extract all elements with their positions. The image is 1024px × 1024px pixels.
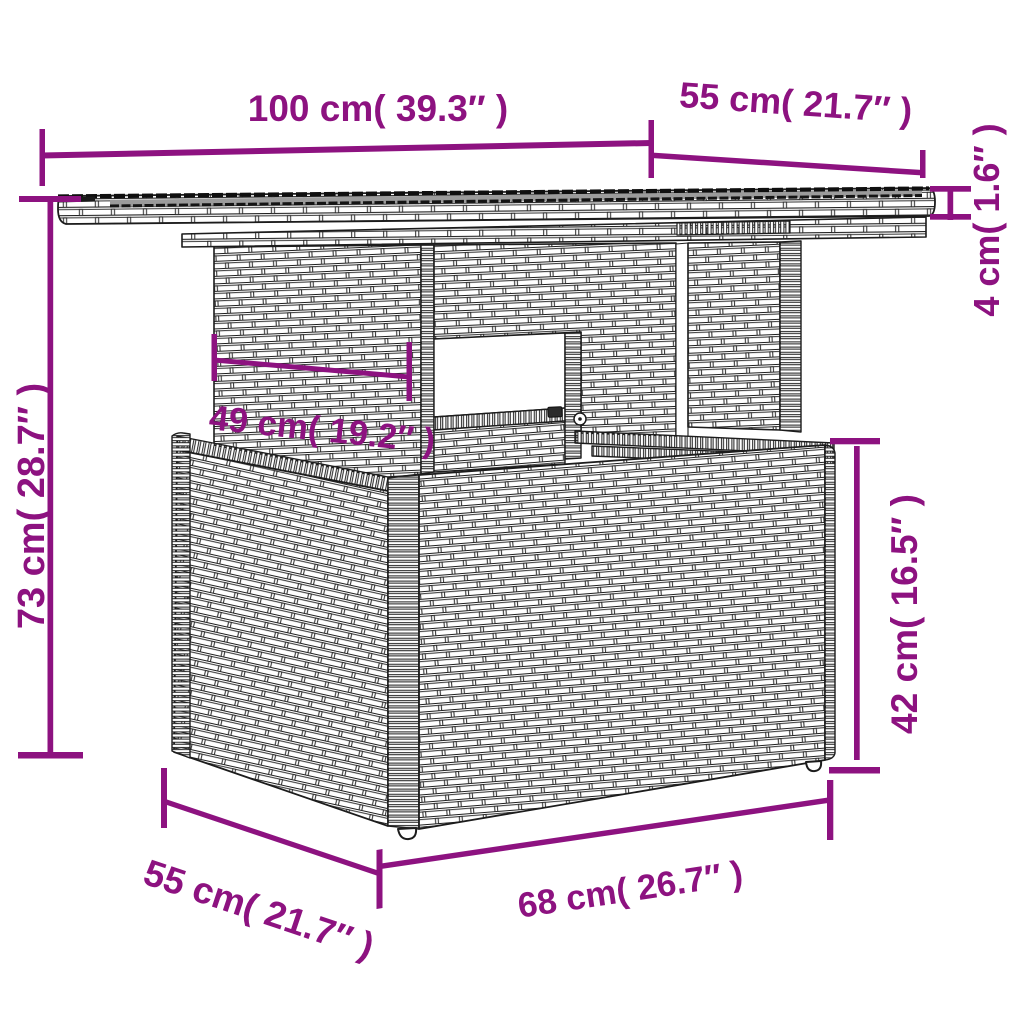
- svg-text:100 cm( 39.3″ ): 100 cm( 39.3″ ): [248, 88, 508, 129]
- svg-text:4 cm( 1.6″ ): 4 cm( 1.6″ ): [966, 123, 1007, 316]
- svg-text:73 cm( 28.7″ ): 73 cm( 28.7″ ): [11, 383, 53, 629]
- svg-text:42 cm( 16.5″ ): 42 cm( 16.5″ ): [884, 494, 925, 734]
